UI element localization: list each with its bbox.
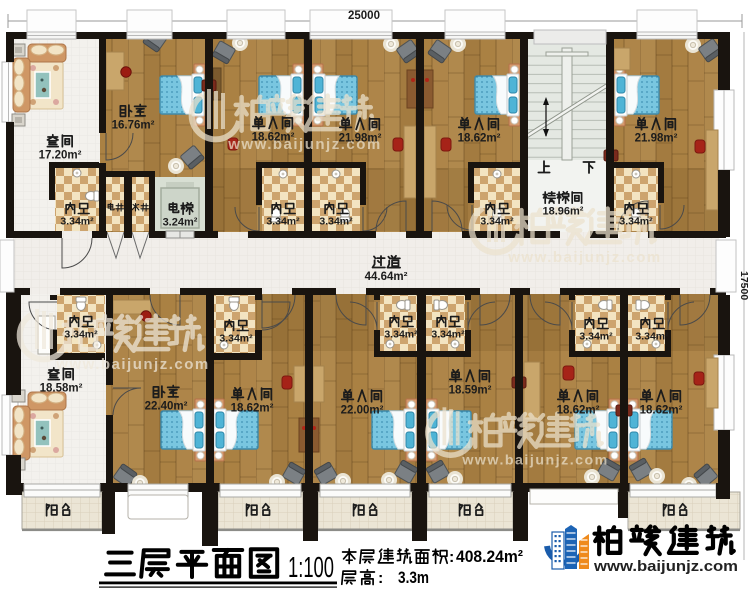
svg-text:25000: 25000 [348,10,380,22]
svg-text:3.24m²: 3.24m² [163,216,198,228]
svg-text:408.24m²: 408.24m² [456,548,523,566]
svg-text:3.34m²: 3.34m² [319,216,353,228]
svg-text:3.34m²: 3.34m² [219,333,253,345]
svg-text:18.96m²: 18.96m² [543,205,584,217]
svg-text:18.62m²: 18.62m² [458,132,501,144]
svg-text:3.34m²: 3.34m² [579,331,613,343]
svg-text:3.3m: 3.3m [398,569,429,587]
svg-text:3.34m²: 3.34m² [635,331,669,343]
svg-text:3.34m²: 3.34m² [60,216,94,228]
svg-text:www.baijunjz.com: www.baijunjz.com [461,452,608,468]
svg-text:17.20m²: 17.20m² [39,149,82,161]
svg-text:3.34m²: 3.34m² [619,216,653,228]
svg-text:18.62m²: 18.62m² [557,404,600,416]
svg-text:21.98m²: 21.98m² [635,132,678,144]
svg-text:1:100: 1:100 [288,552,334,584]
svg-text:18.62m²: 18.62m² [252,131,295,143]
svg-text:17500: 17500 [738,271,750,300]
svg-text:3.34m²: 3.34m² [64,329,98,341]
svg-text:21.98m²: 21.98m² [339,132,382,144]
svg-text:www.baijunjz.com: www.baijunjz.com [55,356,209,373]
svg-text:3.34m²: 3.34m² [266,216,300,228]
svg-text:18.59m²: 18.59m² [449,384,492,396]
svg-text:www.baijunjz.com: www.baijunjz.com [507,249,661,266]
svg-text:3.34m²: 3.34m² [431,329,465,341]
svg-text::: : [449,549,454,566]
svg-text:18.62m²: 18.62m² [231,402,274,414]
svg-text:18.58m²: 18.58m² [40,382,83,394]
svg-text:3.34m²: 3.34m² [384,329,418,341]
svg-text:18.62m²: 18.62m² [640,404,683,416]
svg-text:22.00m²: 22.00m² [341,404,384,416]
svg-text:3.34m²: 3.34m² [480,216,514,228]
svg-text:www.baijunjz.com: www.baijunjz.com [593,559,738,575]
svg-text:44.64m²: 44.64m² [365,271,408,283]
svg-text:16.76m²: 16.76m² [112,119,155,131]
svg-text::: : [378,570,383,587]
svg-text:22.40m²: 22.40m² [145,400,188,412]
